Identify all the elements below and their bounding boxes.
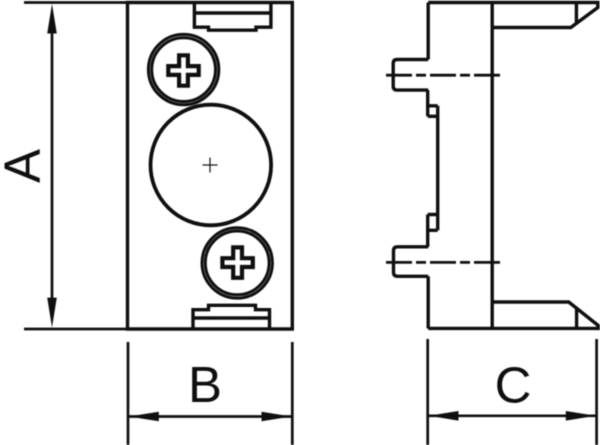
svg-text:B: B <box>188 356 222 413</box>
svg-text:C: C <box>495 357 532 414</box>
svg-text:A: A <box>0 149 51 183</box>
